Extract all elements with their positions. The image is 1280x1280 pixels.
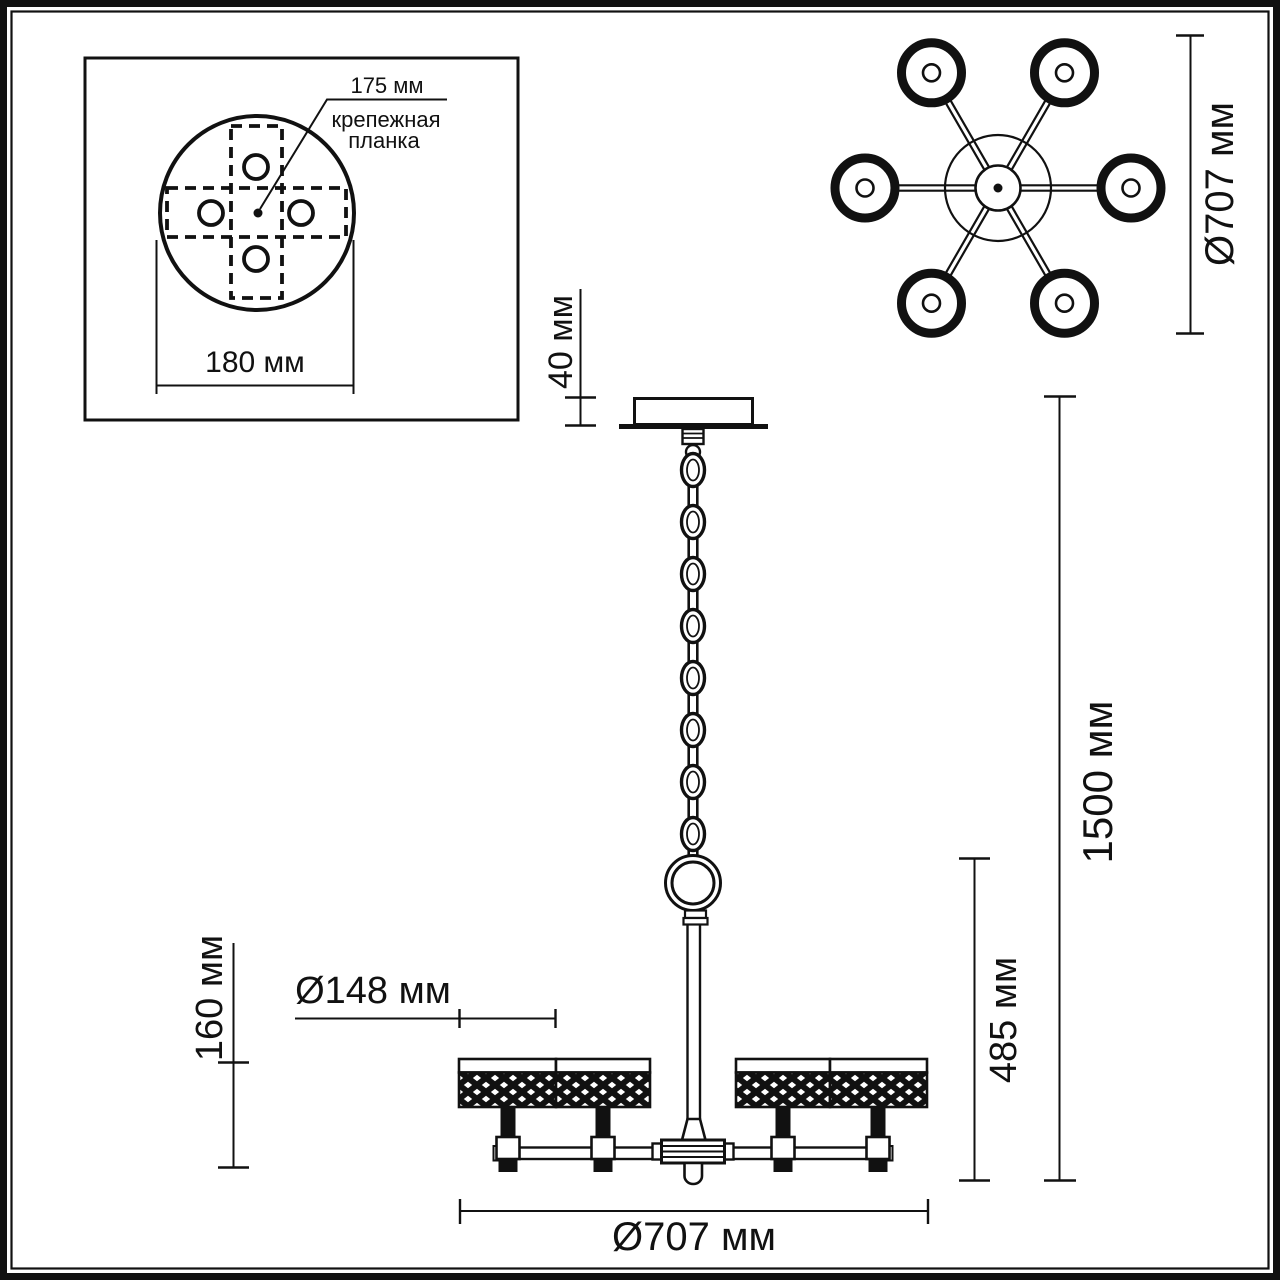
shade-top-view [1035, 43, 1095, 103]
ring-collar [684, 918, 708, 925]
dim-160: 160 мм [189, 935, 249, 1168]
shade-top-view [1035, 273, 1095, 333]
dim-180-label: 180 мм [205, 346, 305, 379]
shade-top-view [1101, 158, 1161, 218]
shade-top-view [835, 158, 895, 218]
top-view: Ø707 мм [835, 36, 1242, 334]
side-view: 40 мм 1500 мм 485 мм 160 мм Ø148 мм [189, 289, 1121, 1259]
dim-148: Ø148 мм [295, 970, 556, 1028]
dim-160-label: 160 мм [189, 935, 231, 1061]
drawing-page: 175 мм крепежная планка 180 мм [0, 0, 1280, 1280]
dim-707-bottom: Ø707 мм [460, 1199, 928, 1259]
mount-detail-inset: 175 мм крепежная планка 180 мм [85, 58, 518, 420]
center-point [254, 209, 263, 218]
arm-top-view [1007, 98, 1052, 170]
hub-center-dot [994, 184, 1003, 193]
ceiling-canopy [619, 399, 768, 460]
arm-top-view [896, 185, 976, 190]
chandelier-dimension-diagram: 175 мм крепежная планка 180 мм [0, 0, 1280, 1280]
shade-socket [497, 1107, 520, 1172]
dim-485-label: 485 мм [983, 957, 1025, 1083]
callout-175-label: 175 мм [350, 73, 423, 98]
dim-707-top: Ø707 мм [1176, 36, 1242, 334]
shade-top-view [902, 273, 962, 333]
ring-collar [685, 911, 706, 919]
center-hub [653, 1140, 734, 1184]
dim-485: 485 мм [959, 859, 1025, 1181]
mount-plate-label-line2: планка [348, 128, 420, 153]
finial [685, 1163, 703, 1184]
dim-1500-label: 1500 мм [1074, 701, 1121, 864]
shade-top-view [902, 43, 962, 103]
dim-1500: 1500 мм [1044, 397, 1121, 1181]
stem-cone [682, 1119, 706, 1140]
shade-socket [867, 1107, 890, 1172]
shade-socket [772, 1107, 795, 1172]
dim-40-label: 40 мм [542, 295, 580, 389]
arm-top-view [1007, 206, 1052, 278]
lamp-shade [736, 1059, 830, 1107]
lamp-shade [830, 1059, 927, 1107]
dim-707-bottom-label: Ø707 мм [612, 1215, 776, 1259]
dim-707-top-label: Ø707 мм [1198, 102, 1242, 266]
arm-top-view [1020, 185, 1100, 190]
dim-40: 40 мм [542, 289, 596, 426]
lamp-shade [459, 1059, 556, 1107]
arm-top-view [945, 98, 990, 170]
shade-socket [592, 1107, 615, 1172]
hanging-ring [666, 856, 721, 925]
arm-top-view [945, 206, 990, 278]
lamp-shade [556, 1059, 650, 1107]
suspension-chain [682, 454, 705, 863]
chain-link [682, 454, 705, 851]
chain-coupler [683, 429, 704, 444]
dim-148-label: Ø148 мм [295, 970, 451, 1012]
center-stem [682, 925, 706, 1141]
